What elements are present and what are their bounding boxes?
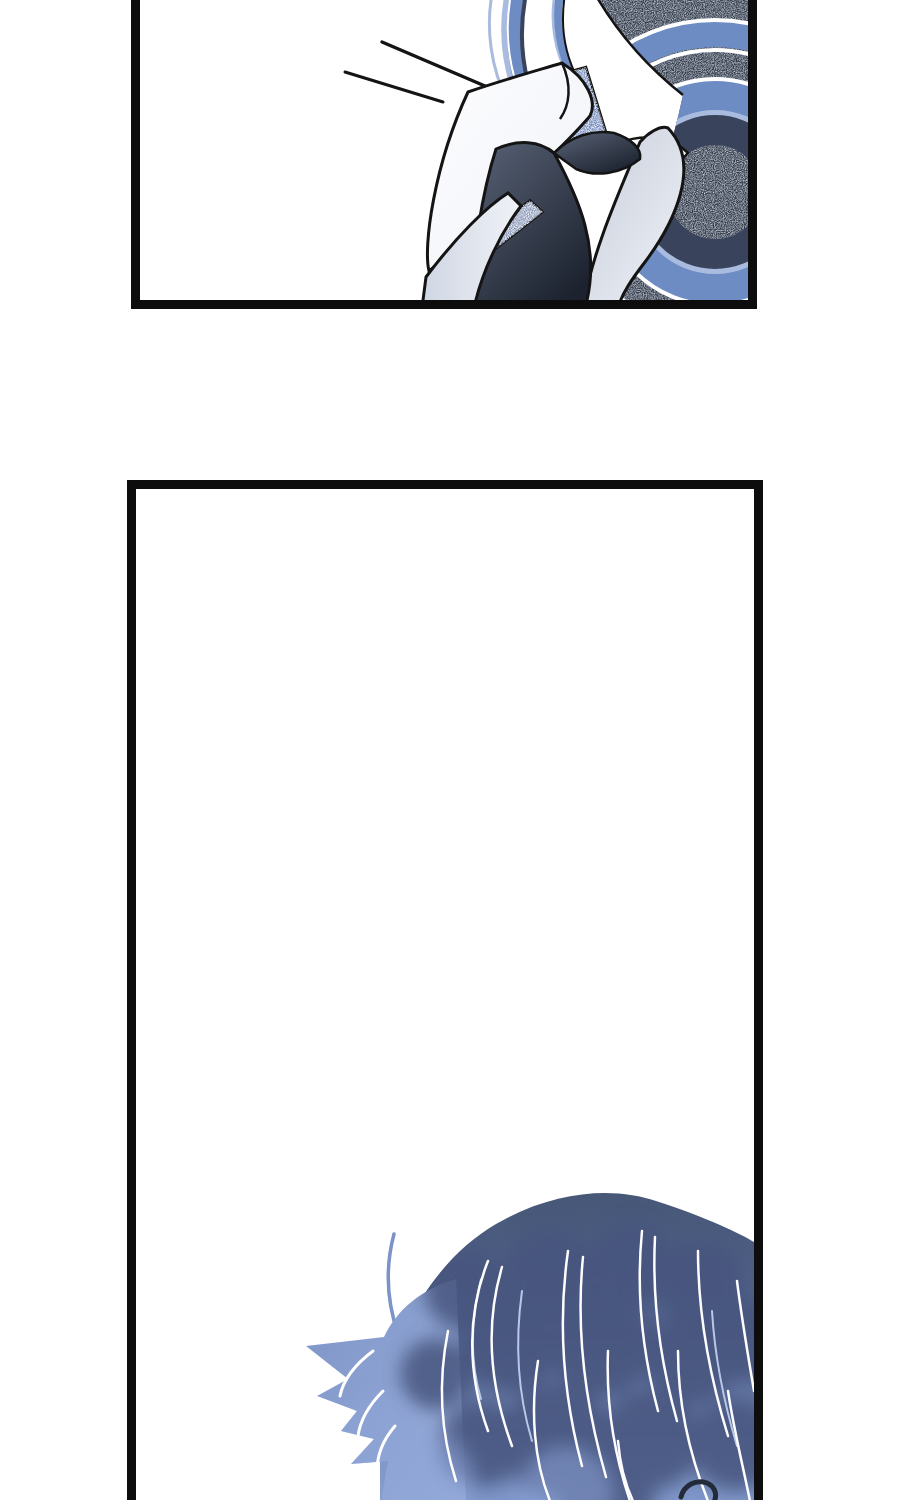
hair-shading-blob (400, 1338, 472, 1410)
comic-panel-bottom (127, 480, 763, 1500)
hair-shading-blob (549, 1292, 653, 1396)
panel-bottom-art (136, 489, 754, 1500)
comic-panel-top (131, 0, 757, 309)
comic-page (0, 0, 900, 1500)
panel-top-art (140, 0, 748, 300)
hair-shading-blob (463, 1296, 559, 1392)
